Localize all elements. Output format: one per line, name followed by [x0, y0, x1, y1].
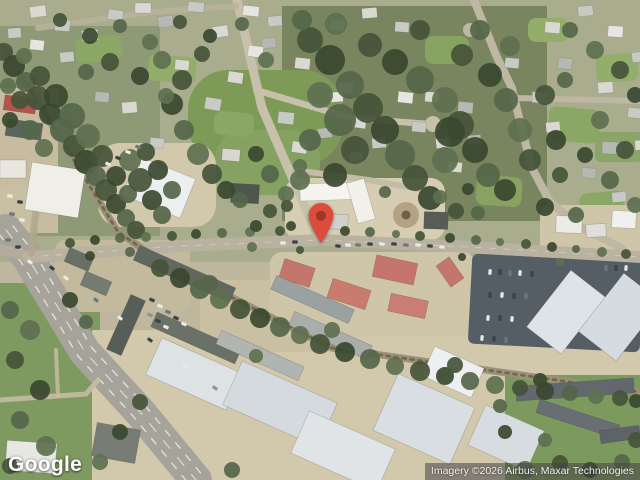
building-roof — [0, 160, 26, 178]
tree-canopy — [2, 112, 18, 128]
tree-canopy — [78, 64, 94, 80]
tree-canopy — [358, 33, 382, 57]
car — [480, 335, 484, 341]
tree-canopy — [6, 351, 24, 369]
tree-canopy — [392, 230, 400, 238]
tree-canopy — [335, 342, 355, 362]
tree-canopy — [141, 232, 151, 242]
car — [345, 243, 351, 247]
tree-canopy — [299, 129, 321, 151]
building-roof — [612, 210, 637, 228]
tree-canopy — [552, 167, 568, 183]
tree-canopy — [612, 390, 628, 406]
tree-canopy — [432, 147, 458, 173]
tree-canopy — [79, 315, 93, 329]
house-roof — [8, 28, 22, 39]
tree-canopy — [588, 388, 604, 404]
tree-canopy — [30, 66, 50, 86]
car — [624, 265, 628, 271]
tree-canopy — [591, 111, 609, 129]
house-roof — [505, 57, 520, 68]
tree-canopy — [402, 165, 428, 191]
car — [604, 265, 608, 271]
tree-canopy — [519, 149, 541, 171]
tree-canopy — [292, 10, 312, 30]
tree-canopy — [568, 207, 584, 223]
tree-canopy — [16, 48, 32, 64]
tree-canopy — [187, 143, 209, 165]
car — [5, 238, 11, 241]
tree-canopy — [263, 204, 277, 218]
tree-canopy — [508, 118, 532, 142]
tree-canopy — [445, 233, 455, 243]
tree-canopy — [286, 221, 296, 231]
tree-canopy — [536, 198, 554, 216]
tree-canopy — [106, 166, 126, 186]
tree-canopy — [533, 373, 547, 387]
car — [335, 244, 341, 248]
ground-patch — [213, 110, 255, 137]
car — [510, 316, 514, 322]
tree-canopy — [597, 247, 607, 257]
tree-canopy — [174, 120, 194, 140]
tree-canopy — [500, 36, 520, 56]
tree-canopy — [53, 13, 67, 27]
tree-canopy — [249, 349, 263, 363]
marker-dot — [316, 211, 326, 221]
car — [512, 293, 516, 299]
tree-canopy — [494, 179, 516, 201]
tree-canopy — [556, 258, 564, 266]
tree-canopy — [415, 231, 425, 241]
tree-canopy — [172, 70, 192, 90]
tree-canopy — [521, 239, 531, 249]
tree-canopy — [30, 380, 50, 400]
tree-canopy — [115, 233, 125, 243]
car — [367, 242, 373, 246]
tree-canopy — [76, 124, 100, 148]
tree-canopy — [278, 186, 294, 202]
tree-canopy — [546, 130, 566, 150]
car — [280, 241, 286, 244]
tree-canopy — [410, 20, 430, 40]
house-roof — [598, 81, 614, 93]
house-roof — [30, 39, 45, 50]
tree-canopy — [85, 251, 95, 261]
tree-canopy — [90, 235, 100, 245]
tree-canopy — [191, 229, 201, 239]
tree-canopy — [478, 63, 502, 87]
tree-canopy — [547, 242, 557, 252]
tree-canopy — [248, 146, 264, 162]
house-roof — [227, 71, 243, 84]
car — [355, 243, 361, 247]
tree-canopy — [341, 136, 369, 164]
tree-canopy — [432, 87, 458, 113]
tree-canopy — [125, 247, 135, 257]
tree-canopy — [448, 203, 464, 219]
tree-canopy — [101, 53, 119, 71]
tree-canopy — [562, 385, 578, 401]
tree-canopy — [562, 22, 578, 38]
tree-canopy — [360, 349, 380, 369]
tree-canopy — [410, 361, 430, 381]
car — [498, 269, 502, 275]
building-roof — [586, 223, 607, 237]
car — [518, 270, 522, 276]
tree-canopy — [324, 322, 340, 338]
tree-canopy — [385, 140, 415, 170]
car — [498, 315, 502, 321]
tree-canopy — [0, 78, 16, 94]
tree-canopy — [471, 206, 485, 220]
marker-body — [309, 203, 334, 243]
car — [486, 315, 490, 321]
tree-canopy — [601, 171, 619, 189]
tree-canopy — [137, 143, 155, 161]
tree-canopy — [235, 17, 249, 31]
tree-canopy — [210, 289, 230, 309]
house-roof — [628, 107, 640, 118]
house-roof — [412, 121, 427, 132]
tree-canopy — [82, 28, 98, 44]
car — [508, 270, 512, 276]
tree-canopy — [447, 357, 463, 373]
house-roof — [277, 111, 294, 125]
tree-canopy — [232, 192, 248, 208]
tree-canopy — [382, 49, 408, 75]
tree-canopy — [258, 52, 274, 68]
house-roof — [545, 21, 561, 33]
tree-canopy — [92, 454, 108, 470]
tree-canopy — [365, 227, 375, 237]
tree-canopy — [202, 275, 218, 291]
tree-canopy — [486, 376, 504, 394]
car — [530, 271, 534, 277]
house-roof — [397, 91, 413, 104]
car — [504, 337, 508, 343]
house-roof — [262, 38, 277, 49]
tree-canopy — [458, 253, 466, 261]
imagery-attribution: Imagery ©2026 Airbus, Maxar Technologies — [425, 463, 640, 480]
dirt-path — [56, 350, 58, 396]
tree-canopy — [462, 137, 488, 163]
tree-canopy — [131, 67, 149, 85]
tree-canopy — [325, 13, 347, 35]
tree-canopy — [433, 190, 447, 204]
tree-canopy — [11, 91, 29, 109]
car — [614, 265, 618, 271]
house-roof — [608, 25, 624, 37]
car — [488, 292, 492, 298]
car — [403, 243, 409, 247]
tree-canopy — [167, 231, 177, 241]
house-roof — [29, 5, 46, 18]
tree-canopy — [371, 116, 399, 144]
tree-canopy — [158, 88, 174, 104]
tree-canopy — [557, 72, 573, 88]
tree-canopy — [281, 200, 293, 212]
tree-canopy — [340, 226, 350, 236]
car — [15, 245, 21, 248]
tree-canopy — [113, 19, 127, 33]
tree-canopy — [577, 147, 593, 163]
tree-canopy — [494, 88, 518, 112]
tree-canopy — [153, 51, 171, 69]
building-roof — [222, 148, 241, 162]
house-roof — [175, 59, 190, 70]
tree-canopy — [307, 82, 333, 108]
house-roof — [95, 91, 110, 102]
tree-canopy — [498, 425, 512, 439]
tree-canopy — [151, 259, 169, 277]
ground-disc — [402, 211, 411, 220]
tree-canopy — [315, 45, 345, 75]
tree-canopy — [435, 117, 465, 147]
tree-canopy — [1, 301, 19, 319]
tree-canopy — [202, 164, 222, 184]
tree-canopy — [496, 238, 504, 246]
building-roof — [424, 212, 449, 230]
tree-canopy — [461, 372, 479, 390]
tree-canopy — [35, 139, 53, 157]
tree-canopy — [132, 394, 148, 410]
tree-canopy — [59, 103, 85, 129]
tree-canopy — [217, 228, 227, 238]
tree-canopy — [386, 357, 404, 375]
tree-canopy — [379, 186, 391, 198]
tree-canopy — [247, 242, 257, 252]
tree-canopy — [261, 165, 279, 183]
tree-canopy — [572, 245, 580, 253]
map-marker-icon[interactable] — [307, 202, 335, 244]
tree-canopy — [512, 380, 528, 396]
house-roof — [395, 22, 410, 33]
house-roof — [122, 101, 138, 113]
car — [379, 242, 385, 246]
tree-canopy — [163, 181, 181, 199]
tree-canopy — [616, 141, 634, 159]
map-viewport[interactable]: Google Imagery ©2026 Airbus, Maxar Techn… — [0, 0, 640, 480]
tree-canopy — [44, 84, 68, 108]
tree-canopy — [275, 226, 285, 236]
tree-canopy — [611, 61, 629, 79]
tree-canopy — [586, 41, 604, 59]
house-roof — [362, 7, 378, 18]
tree-canopy — [173, 15, 187, 29]
tree-canopy — [291, 326, 309, 344]
tree-canopy — [406, 66, 434, 94]
google-logo[interactable]: Google — [8, 453, 82, 477]
tree-canopy — [250, 308, 270, 328]
house-roof — [632, 51, 640, 62]
tree-canopy — [336, 71, 364, 99]
car — [439, 245, 445, 249]
tree-canopy — [462, 183, 474, 195]
house-roof — [135, 3, 151, 13]
house-roof — [157, 15, 173, 28]
car — [292, 240, 298, 243]
tree-canopy — [296, 246, 304, 254]
tree-canopy — [170, 268, 190, 288]
car — [415, 243, 421, 247]
tree-canopy — [62, 292, 78, 308]
tree-canopy — [65, 238, 75, 248]
house-roof — [204, 97, 222, 112]
house-roof — [294, 57, 310, 70]
tree-canopy — [224, 462, 240, 478]
house-roof — [268, 15, 283, 26]
tree-canopy — [20, 320, 40, 340]
tree-canopy — [194, 46, 210, 62]
tree-canopy — [293, 159, 307, 173]
tree-canopy — [250, 220, 262, 232]
tree-canopy — [538, 433, 552, 447]
tree-canopy — [297, 27, 323, 53]
tree-canopy — [20, 120, 40, 140]
tree-canopy — [270, 317, 290, 337]
tree-canopy — [203, 29, 217, 43]
tree-canopy — [621, 249, 631, 259]
house-roof — [243, 5, 260, 17]
car — [492, 336, 496, 342]
tree-canopy — [324, 104, 356, 136]
car — [488, 269, 492, 275]
tree-canopy — [535, 85, 555, 105]
house-roof — [582, 167, 597, 178]
tree-canopy — [153, 206, 171, 224]
car — [427, 244, 433, 248]
tree-canopy — [142, 34, 158, 50]
house-roof — [557, 57, 572, 69]
tree-canopy — [493, 399, 507, 413]
tree-canopy — [471, 235, 481, 245]
tree-canopy — [451, 44, 473, 66]
house-roof — [635, 140, 640, 151]
building-roof — [25, 162, 86, 218]
car — [391, 242, 397, 246]
house-roof — [60, 51, 75, 62]
tree-canopy — [217, 181, 235, 199]
house-roof — [578, 5, 594, 17]
tree-canopy — [112, 424, 128, 440]
house-roof — [612, 191, 627, 202]
tree-canopy — [148, 160, 168, 180]
tree-canopy — [11, 411, 29, 429]
car — [500, 292, 504, 298]
tree-canopy — [310, 334, 330, 354]
tree-canopy — [323, 163, 347, 187]
house-roof — [188, 1, 205, 12]
tree-canopy — [470, 20, 490, 40]
car — [524, 293, 528, 299]
tree-canopy — [230, 299, 250, 319]
